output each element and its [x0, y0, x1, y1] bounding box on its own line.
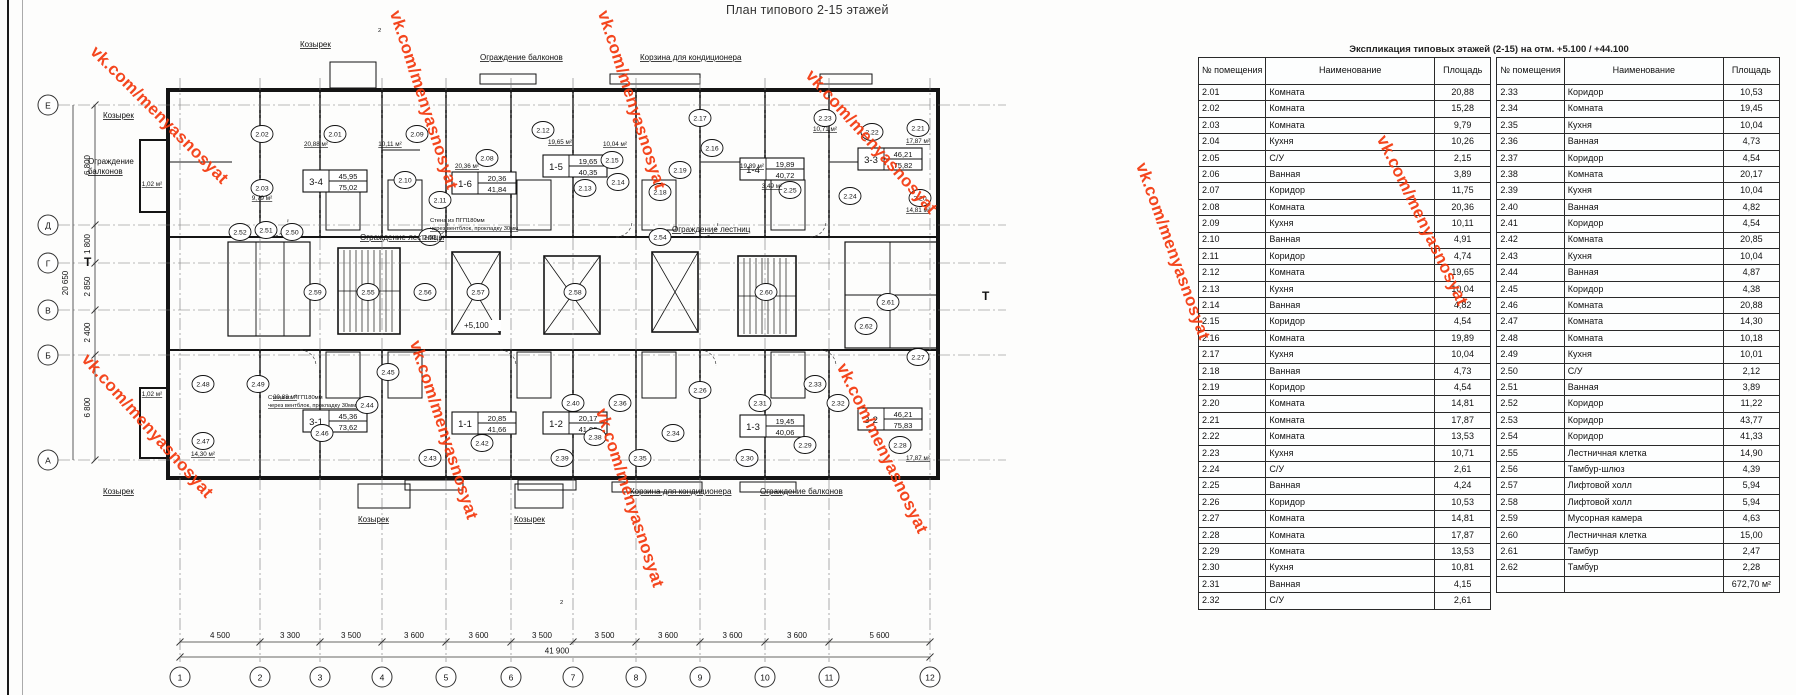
- room-name-cell: С/У: [1266, 150, 1435, 166]
- table-row: 2.24С/У2,61: [1199, 461, 1491, 477]
- room-number-cell: 2.52: [1497, 396, 1564, 412]
- room-number-cell: 2.34: [1497, 101, 1564, 117]
- room-area-cell: 3,89: [1723, 380, 1779, 396]
- room-number-cell: 2.59: [1497, 511, 1564, 527]
- room-name-cell: Лестничная клетка: [1564, 527, 1723, 543]
- table-row: 2.59Мусорная камера4,63: [1497, 511, 1780, 527]
- room-number: 2.19: [673, 168, 686, 175]
- room-area-cell: 19,89: [1435, 330, 1491, 346]
- room-number: 2.14: [611, 180, 624, 187]
- room-number-cell: 2.03: [1199, 117, 1266, 133]
- screenshot-root: План типового 2-15 этажей: [0, 0, 1796, 695]
- room-number-cell: 2.49: [1497, 347, 1564, 363]
- room-name-cell: Коридор: [1266, 380, 1435, 396]
- table-row: 2.10Ванная4,91: [1199, 232, 1491, 248]
- table-row: 2.18Ванная4,73: [1199, 363, 1491, 379]
- apartment-living-area: 45,95: [339, 172, 358, 181]
- room-number: 2.35: [633, 456, 646, 463]
- annotation-label: +5,100: [464, 321, 489, 330]
- room-area-label: 10,11 м²: [378, 141, 401, 148]
- total-area-row: 672,70 м²: [1497, 576, 1780, 592]
- empty-cell: [1497, 576, 1564, 592]
- table-row: 2.42Комната20,85: [1497, 232, 1780, 248]
- room-name-cell: Комната: [1266, 85, 1435, 101]
- table-row: 2.25Ванная4,24: [1199, 478, 1491, 494]
- room-number: 2.61: [881, 300, 894, 307]
- room-number-cell: 2.23: [1199, 445, 1266, 461]
- header-row: № помещения Наименование Площадь: [1497, 58, 1780, 85]
- table-row: 2.31Ванная4,15: [1199, 576, 1491, 592]
- annotation-label: Козырек: [103, 111, 134, 120]
- dim-total-label: 41 900: [545, 647, 570, 656]
- room-area-cell: 14,81: [1435, 396, 1491, 412]
- room-area-cell: 10,18: [1723, 330, 1779, 346]
- room-area-label: 1,02 м²: [142, 181, 162, 188]
- annotation-label: Козырек: [358, 515, 389, 524]
- room-number-cell: 2.11: [1199, 248, 1266, 264]
- axis-letter-label: Г: [46, 259, 51, 269]
- table-row: 2.58Лифтовой холл5,94: [1497, 494, 1780, 510]
- dim-label: 3 500: [594, 631, 615, 640]
- room-number-cell: 2.10: [1199, 232, 1266, 248]
- room-number-cell: 2.46: [1497, 298, 1564, 314]
- room-name-cell: Кухня: [1564, 248, 1723, 264]
- room-number-cell: 2.25: [1199, 478, 1266, 494]
- room-area-cell: 20,88: [1723, 298, 1779, 314]
- room-name-cell: С/У: [1564, 363, 1723, 379]
- room-area-cell: 3,89: [1435, 166, 1491, 182]
- room-number-cell: 2.18: [1199, 363, 1266, 379]
- room-area-cell: 9,79: [1435, 117, 1491, 133]
- room-name-cell: Комната: [1564, 232, 1723, 248]
- total-area-value: 672,70 м²: [1723, 576, 1779, 592]
- axis-number-label: 2: [258, 673, 263, 683]
- room-name-cell: Комната: [1266, 429, 1435, 445]
- room-number-cell: 2.09: [1199, 216, 1266, 232]
- table-row: 2.16Комната19,89: [1199, 330, 1491, 346]
- room-number-cell: 2.05: [1199, 150, 1266, 166]
- apartment-living-area: 20,17: [579, 414, 598, 423]
- room-number: 2.40: [566, 401, 579, 408]
- dim-label: 3 600: [722, 631, 743, 640]
- room-name-cell: Комната: [1564, 166, 1723, 182]
- room-area-cell: 4,24: [1435, 478, 1491, 494]
- room-name-cell: Тамбур: [1564, 560, 1723, 576]
- room-number: 2.11: [434, 198, 447, 205]
- table-row: 2.15Коридор4,54: [1199, 314, 1491, 330]
- room-name-cell: Ванная: [1266, 576, 1435, 592]
- apartment-total-area: 40,35: [579, 168, 598, 177]
- apartment-code: 3-2: [864, 415, 878, 426]
- room-name-cell: Ванная: [1266, 478, 1435, 494]
- table-row: 2.30Кухня10,81: [1199, 560, 1491, 576]
- room-area-cell: 4,38: [1723, 281, 1779, 297]
- room-number: 2.36: [613, 401, 626, 408]
- room-name-cell: Ванная: [1564, 134, 1723, 150]
- room-number: 2.48: [196, 382, 209, 389]
- axis-letter-label: В: [45, 306, 51, 316]
- table-row: 2.54Коридор41,33: [1497, 429, 1780, 445]
- room-number-cell: 2.35: [1497, 117, 1564, 133]
- room-number-cell: 2.58: [1497, 494, 1564, 510]
- apartment-living-area: 20,36: [488, 174, 507, 183]
- dim-label: 4 500: [210, 631, 231, 640]
- room-area-cell: 10,11: [1435, 216, 1491, 232]
- room-number-cell: 2.60: [1497, 527, 1564, 543]
- room-number: 2.24: [843, 194, 856, 201]
- dim-label: 3 600: [468, 631, 489, 640]
- room-number: 2.17: [693, 116, 706, 123]
- table-row: 2.55Лестничная клетка14,90: [1497, 445, 1780, 461]
- room-area-label: 19,65 м²: [548, 139, 572, 146]
- room-area-cell: 2,15: [1435, 150, 1491, 166]
- room-name-cell: Комната: [1266, 330, 1435, 346]
- room-number-cell: 2.41: [1497, 216, 1564, 232]
- room-number: 2.15: [605, 158, 618, 165]
- room-area-cell: 2,61: [1435, 593, 1491, 609]
- room-number: 2.58: [568, 290, 581, 297]
- room-name-cell: С/У: [1266, 461, 1435, 477]
- room-number-cell: 2.28: [1199, 527, 1266, 543]
- room-number-cell: 2.16: [1199, 330, 1266, 346]
- table-row: 2.48Комната10,18: [1497, 330, 1780, 346]
- room-area-cell: 4,54: [1723, 216, 1779, 232]
- room-area-cell: 20,85: [1723, 232, 1779, 248]
- room-number: 2.38: [588, 435, 601, 442]
- room-number-cell: 2.44: [1497, 265, 1564, 281]
- apartment-code: 1-5: [549, 162, 563, 173]
- annotation-label: Козырек: [103, 487, 134, 496]
- apartment-total-area: 75,02: [339, 183, 358, 192]
- room-number-cell: 2.61: [1497, 543, 1564, 559]
- table-row: 2.05С/У2,15: [1199, 150, 1491, 166]
- room-name-cell: Лифтовой холл: [1564, 494, 1723, 510]
- room-area-cell: 2,47: [1723, 543, 1779, 559]
- room-area-cell: 14,30: [1723, 314, 1779, 330]
- room-number: 2.34: [666, 431, 679, 438]
- table-row: 2.23Кухня10,71: [1199, 445, 1491, 461]
- room-number-cell: 2.15: [1199, 314, 1266, 330]
- room-name-cell: Лестничная клетка: [1564, 445, 1723, 461]
- room-name-cell: Кухня: [1564, 347, 1723, 363]
- room-number: 2.60: [759, 290, 772, 297]
- room-name-cell: Коридор: [1564, 150, 1723, 166]
- room-number-cell: 2.19: [1199, 380, 1266, 396]
- table-row: 2.45Коридор4,38: [1497, 281, 1780, 297]
- apartment-total-area: 41,66: [488, 425, 507, 434]
- room-area-label: 9,79 м²: [252, 195, 272, 202]
- room-number-cell: 2.26: [1199, 494, 1266, 510]
- axis-number-label: 9: [698, 673, 703, 683]
- room-area-cell: 4,82: [1435, 298, 1491, 314]
- axis-letter-label: А: [45, 456, 51, 466]
- apartment-living-area: 20,85: [488, 414, 507, 423]
- room-name-cell: Кухня: [1266, 216, 1435, 232]
- room-name-cell: Кухня: [1266, 134, 1435, 150]
- room-number-cell: 2.40: [1497, 199, 1564, 215]
- explication-table-left: № помещения Наименование Площадь 2.01Ком…: [1198, 57, 1491, 610]
- table-row: 2.60Лестничная клетка15,00: [1497, 527, 1780, 543]
- room-number: 2.16: [705, 146, 718, 153]
- room-number-cell: 2.17: [1199, 347, 1266, 363]
- dim-label: 5 600: [869, 631, 890, 640]
- annotation-label: через вентблок, прокладку 30мм: [268, 403, 356, 409]
- room-number: 2.43: [423, 456, 436, 463]
- dim-label: 2 850: [83, 276, 92, 297]
- room-area-cell: 4,74: [1435, 248, 1491, 264]
- table-row: 2.57Лифтовой холл5,94: [1497, 478, 1780, 494]
- room-name-cell: Коридор: [1266, 494, 1435, 510]
- room-name-cell: Коридор: [1266, 314, 1435, 330]
- room-number: 2.29: [798, 443, 811, 450]
- col-header-area: Площадь: [1435, 58, 1491, 85]
- room-area-label: 3,49 м²: [762, 183, 782, 190]
- apartment-living-area: 19,45: [776, 417, 795, 426]
- table-row: 2.38Комната20,17: [1497, 166, 1780, 182]
- apartment-code: 3-4: [309, 177, 323, 188]
- room-name-cell: Коридор: [1266, 183, 1435, 199]
- room-number-cell: 2.06: [1199, 166, 1266, 182]
- room-area-cell: 13,53: [1435, 429, 1491, 445]
- table-row: 2.37Коридор4,54: [1497, 150, 1780, 166]
- annotation-label: Ограждение лестницы: [360, 233, 444, 242]
- apartment-total-area: 40,72: [776, 171, 795, 180]
- table-row: 2.46Комната20,88: [1497, 298, 1780, 314]
- apartment-living-area: 46,21: [894, 150, 913, 159]
- table-row: 2.27Комната14,81: [1199, 511, 1491, 527]
- room-number-cell: 2.33: [1497, 85, 1564, 101]
- room-number-cell: 2.22: [1199, 429, 1266, 445]
- table-row: 2.43Кухня10,04: [1497, 248, 1780, 264]
- room-name-cell: Коридор: [1564, 429, 1723, 445]
- room-name-cell: Кухня: [1266, 281, 1435, 297]
- apartment-total-area: 75,82: [894, 161, 913, 170]
- room-area-cell: 10,81: [1435, 560, 1491, 576]
- room-name-cell: Кухня: [1266, 560, 1435, 576]
- annotation-label: Ограждение лестниц: [672, 225, 751, 234]
- room-number: 2.08: [480, 156, 493, 163]
- room-name-cell: Коридор: [1564, 281, 1723, 297]
- apartment-total-area: 73,62: [339, 423, 358, 432]
- floor-plan-drawing: 123456789101112ЕДГВБА4 5003 3003 5003 60…: [0, 0, 1040, 695]
- room-name-cell: Мусорная камера: [1564, 511, 1723, 527]
- room-number: 2.03: [255, 186, 268, 193]
- table-row: 2.35Кухня10,04: [1497, 117, 1780, 133]
- room-number-cell: 2.31: [1199, 576, 1266, 592]
- table-row: 2.12Комната19,65: [1199, 265, 1491, 281]
- room-name-cell: Комната: [1266, 101, 1435, 117]
- room-number: 2.62: [859, 324, 872, 331]
- room-area-cell: 14,81: [1435, 511, 1491, 527]
- room-number-cell: 2.56: [1497, 461, 1564, 477]
- room-number-cell: 2.27: [1199, 511, 1266, 527]
- table-row: 2.36Ванная4,73: [1497, 134, 1780, 150]
- room-area-cell: 11,22: [1723, 396, 1779, 412]
- room-name-cell: Коридор: [1564, 396, 1723, 412]
- room-number: 2.13: [578, 186, 591, 193]
- table-row: 2.39Кухня10,04: [1497, 183, 1780, 199]
- room-number-cell: 2.57: [1497, 478, 1564, 494]
- room-area-cell: 4,54: [1723, 150, 1779, 166]
- annotation-label: Стена из ПГП180мм: [430, 218, 485, 224]
- table-row: 2.17Кухня10,04: [1199, 347, 1491, 363]
- room-number-cell: 2.62: [1497, 560, 1564, 576]
- table-row: 2.26Коридор10,53: [1199, 494, 1491, 510]
- table-row: 2.49Кухня10,01: [1497, 347, 1780, 363]
- annotation-label: Т: [982, 289, 990, 303]
- room-area-cell: 10,01: [1723, 347, 1779, 363]
- room-number: 2.55: [361, 290, 374, 297]
- annotation-label: балконов: [88, 167, 123, 176]
- room-area-cell: 4,73: [1723, 134, 1779, 150]
- axis-number-label: 1: [178, 673, 183, 683]
- room-name-cell: Коридор: [1564, 85, 1723, 101]
- axis-letter-label: Б: [45, 351, 51, 361]
- room-area-cell: 4,54: [1435, 314, 1491, 330]
- apartment-code: 1-6: [458, 179, 472, 190]
- annotation-label: Стена из ПГП180мм: [268, 395, 323, 401]
- room-area-cell: 10,53: [1723, 85, 1779, 101]
- dim-label: 2 400: [83, 322, 92, 343]
- room-name-cell: Комната: [1564, 298, 1723, 314]
- room-number-cell: 2.04: [1199, 134, 1266, 150]
- room-name-cell: Комната: [1266, 527, 1435, 543]
- room-area-label: 17,87 м²: [906, 138, 930, 145]
- explication-section: Экспликация типовых этажей (2-15) на отм…: [1198, 44, 1780, 610]
- room-number: 2.23: [818, 116, 831, 123]
- table-row: 2.19Коридор4,54: [1199, 380, 1491, 396]
- dim-total-label: 20 650: [61, 270, 70, 295]
- room-area-label: 10,71 м²: [813, 126, 837, 133]
- room-area-cell: 2,12: [1723, 363, 1779, 379]
- room-number-cell: 2.43: [1497, 248, 1564, 264]
- room-name-cell: Ванная: [1564, 199, 1723, 215]
- room-number: 2.10: [398, 178, 411, 185]
- room-area-label: 20,88 м²: [304, 141, 328, 148]
- room-area-cell: 19,45: [1723, 101, 1779, 117]
- room-number-cell: 2.42: [1497, 232, 1564, 248]
- axis-letter-label: Д: [45, 221, 51, 231]
- room-name-cell: Ванная: [1564, 380, 1723, 396]
- annotation-label: Козырек: [514, 515, 545, 524]
- annotation-label: через вентблок, прокладку 30мм: [430, 226, 518, 232]
- axis-number-label: 11: [825, 673, 834, 683]
- room-number: 2.12: [536, 128, 549, 135]
- room-number-cell: 2.30: [1199, 560, 1266, 576]
- room-area-cell: 10,04: [1435, 281, 1491, 297]
- room-area-label: 19,89 м²: [740, 163, 764, 170]
- room-name-cell: Кухня: [1266, 445, 1435, 461]
- room-name-cell: Комната: [1266, 199, 1435, 215]
- room-number: 2.18: [653, 190, 666, 197]
- room-area-label: 10,04 м²: [603, 141, 627, 148]
- room-number-cell: 2.08: [1199, 199, 1266, 215]
- dim-label: 6 800: [83, 397, 92, 418]
- room-area-cell: 19,65: [1435, 265, 1491, 281]
- dim-label: 3 500: [532, 631, 553, 640]
- room-number-cell: 2.32: [1199, 593, 1266, 609]
- table-row: 2.32С/У2,61: [1199, 593, 1491, 609]
- apartment-code: 1-2: [549, 419, 563, 430]
- room-name-cell: Кухня: [1564, 183, 1723, 199]
- room-name-cell: Ванная: [1266, 363, 1435, 379]
- table-row: 2.56Тамбур-шлюз4,39: [1497, 461, 1780, 477]
- room-number: 2.50: [285, 230, 298, 237]
- room-area-cell: 10,04: [1723, 248, 1779, 264]
- room-name-cell: Лифтовой холл: [1564, 478, 1723, 494]
- room-number-cell: 2.48: [1497, 330, 1564, 346]
- room-area-cell: 15,00: [1723, 527, 1779, 543]
- room-number-cell: 2.47: [1497, 314, 1564, 330]
- table-row: 2.29Комната13,53: [1199, 543, 1491, 559]
- room-number-cell: 2.50: [1497, 363, 1564, 379]
- room-number: 2.57: [471, 290, 484, 297]
- axis-number-label: 5: [444, 673, 449, 683]
- dim-label: 3 600: [658, 631, 679, 640]
- room-number: 2.39: [555, 456, 568, 463]
- table-row: 2.47Комната14,30: [1497, 314, 1780, 330]
- room-area-cell: 20,17: [1723, 166, 1779, 182]
- room-number: 2.02: [255, 132, 268, 139]
- dim-label: 3 500: [341, 631, 362, 640]
- room-area-cell: 20,88: [1435, 85, 1491, 101]
- room-name-cell: С/У: [1266, 593, 1435, 609]
- room-number-cell: 2.01: [1199, 85, 1266, 101]
- table-row: 2.51Ванная3,89: [1497, 380, 1780, 396]
- room-number: 2.42: [475, 441, 488, 448]
- table-row: 2.41Коридор4,54: [1497, 216, 1780, 232]
- apartment-living-area: 45,36: [339, 412, 358, 421]
- table-row: 2.08Комната20,36: [1199, 199, 1491, 215]
- dim-label: 3 300: [280, 631, 301, 640]
- col-header-room-number: № помещения: [1199, 58, 1266, 85]
- room-number: 2.22: [865, 130, 878, 137]
- table-row: 2.09Кухня10,11: [1199, 216, 1491, 232]
- table-row: 2.11Коридор4,74: [1199, 248, 1491, 264]
- room-number-cell: 2.38: [1497, 166, 1564, 182]
- table-row: 2.53Коридор43,77: [1497, 412, 1780, 428]
- col-header-name: Наименование: [1266, 58, 1435, 85]
- col-header-name: Наименование: [1564, 58, 1723, 85]
- room-number-cell: 2.24: [1199, 461, 1266, 477]
- room-name-cell: Комната: [1266, 412, 1435, 428]
- room-area-cell: 10,26: [1435, 134, 1491, 150]
- room-area-cell: 5,94: [1723, 494, 1779, 510]
- room-area-cell: 17,87: [1435, 412, 1491, 428]
- room-number: 2.27: [911, 355, 924, 362]
- room-name-cell: Коридор: [1564, 216, 1723, 232]
- room-number-cell: 2.51: [1497, 380, 1564, 396]
- room-number: 2.45: [381, 370, 394, 377]
- room-name-cell: Ванная: [1266, 232, 1435, 248]
- apartment-total-area: 75,83: [894, 421, 913, 430]
- room-area-label: 14,81 м²: [906, 207, 930, 214]
- room-area-label: 17,87 м²: [906, 455, 930, 462]
- dim-label: 1 800: [83, 233, 92, 254]
- room-name-cell: Коридор: [1564, 412, 1723, 428]
- axis-letter-label: Е: [45, 101, 51, 111]
- apartment-total-area: 41,84: [488, 185, 507, 194]
- table-row: 2.04Кухня10,26: [1199, 134, 1491, 150]
- room-number-cell: 2.13: [1199, 281, 1266, 297]
- room-name-cell: Коридор: [1266, 248, 1435, 264]
- room-area-cell: 2,28: [1723, 560, 1779, 576]
- room-number: 2.51: [259, 228, 272, 235]
- axis-number-label: 4: [380, 673, 385, 683]
- room-number-cell: 2.14: [1199, 298, 1266, 314]
- room-area-cell: 10,71: [1435, 445, 1491, 461]
- axis-number-label: 3: [318, 673, 323, 683]
